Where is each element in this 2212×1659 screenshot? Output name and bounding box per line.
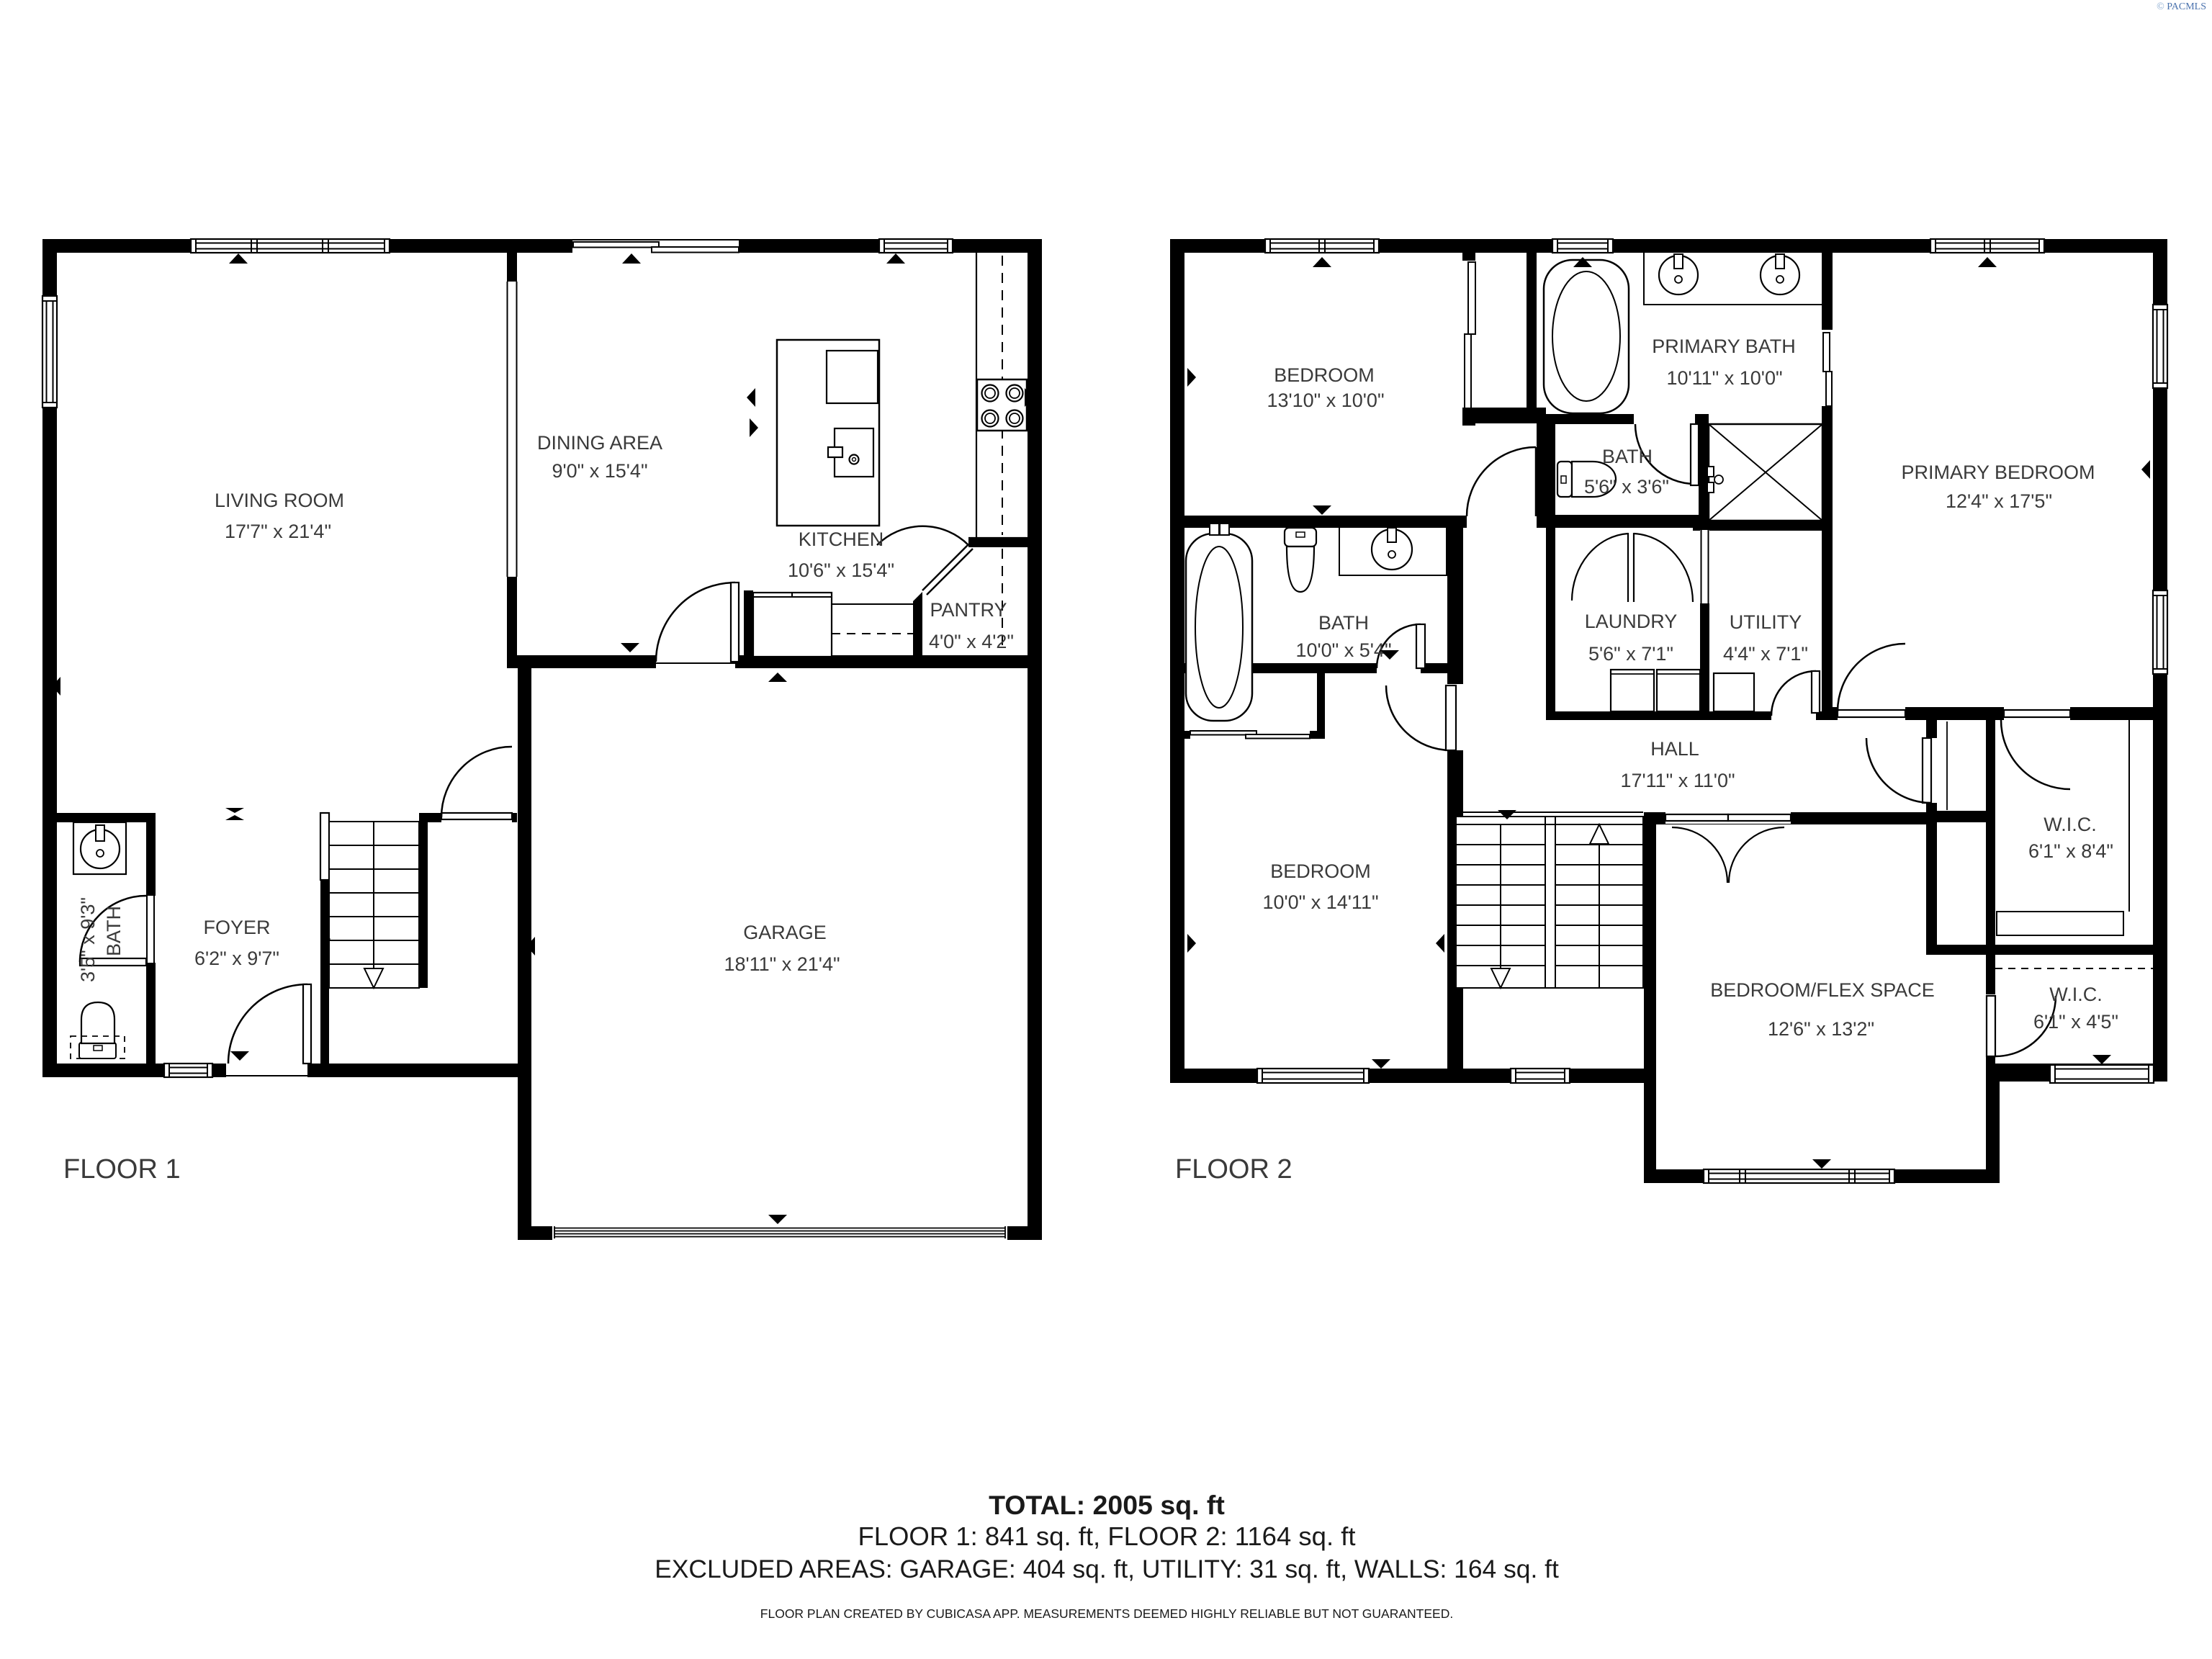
svg-text:FLOOR PLAN CREATED BY CUBICASA: FLOOR PLAN CREATED BY CUBICASA APP. MEAS… [760,1606,1453,1621]
svg-text:6'1" x 4'5": 6'1" x 4'5" [2033,1011,2118,1033]
svg-text:10'0" x 14'11": 10'0" x 14'11" [1262,891,1378,913]
svg-text:FLOOR 1: 841 sq. ft, FLOOR 2:: FLOOR 1: 841 sq. ft, FLOOR 2: 1164 sq. f… [858,1521,1355,1551]
svg-text:KITCHEN: KITCHEN [799,529,884,550]
svg-text:5'6" x 7'1": 5'6" x 7'1" [1588,643,1673,665]
svg-text:W.I.C.: W.I.C. [2049,984,2103,1005]
svg-text:10'11" x 10'0": 10'11" x 10'0" [1666,367,1782,389]
svg-text:13'10" x 10'0": 13'10" x 10'0" [1267,390,1384,411]
svg-text:BATH: BATH [1318,612,1369,634]
svg-text:FLOOR 2: FLOOR 2 [1175,1154,1292,1184]
svg-text:17'11" x 11'0": 17'11" x 11'0" [1620,770,1735,791]
svg-text:W.I.C.: W.I.C. [2044,814,2097,835]
svg-text:PANTRY: PANTRY [930,599,1007,621]
svg-text:FLOOR 1: FLOOR 1 [63,1154,181,1184]
svg-text:3'5" x 9'3": 3'5" x 9'3" [77,897,99,982]
svg-text:18'11" x 21'4": 18'11" x 21'4" [724,953,840,975]
svg-text:5'6" x 3'6": 5'6" x 3'6" [1584,476,1669,498]
svg-text:BEDROOM: BEDROOM [1274,364,1375,386]
svg-text:PRIMARY BATH: PRIMARY BATH [1652,336,1796,357]
svg-text:TOTAL: 2005 sq. ft: TOTAL: 2005 sq. ft [989,1490,1225,1520]
svg-text:BATH: BATH [103,906,125,956]
svg-text:UTILITY: UTILITY [1730,611,1802,633]
svg-text:DINING AREA: DINING AREA [537,432,662,454]
svg-text:4'0" x 4'2": 4'0" x 4'2" [929,631,1014,652]
svg-text:BATH: BATH [1602,446,1653,467]
svg-text:LAUNDRY: LAUNDRY [1585,611,1678,632]
svg-text:BEDROOM: BEDROOM [1270,860,1371,882]
svg-text:GARAGE: GARAGE [743,922,827,943]
svg-text:BEDROOM/FLEX SPACE: BEDROOM/FLEX SPACE [1710,979,1935,1001]
svg-text:4'4" x 7'1": 4'4" x 7'1" [1723,643,1808,665]
svg-text:12'4" x 17'5": 12'4" x 17'5" [1946,490,2052,512]
svg-text:FOYER: FOYER [203,917,270,938]
svg-text:6'2" x 9'7": 6'2" x 9'7" [194,948,279,969]
svg-text:© PACMLS: © PACMLS [2157,1,2206,12]
svg-text:HALL: HALL [1650,738,1699,760]
svg-text:EXCLUDED AREAS: GARAGE: 404 sq: EXCLUDED AREAS: GARAGE: 404 sq. ft, UTIL… [655,1555,1559,1583]
svg-text:LIVING ROOM: LIVING ROOM [215,490,344,511]
svg-text:17'7" x 21'4": 17'7" x 21'4" [225,521,331,542]
svg-text:10'6" x 15'4": 10'6" x 15'4" [788,559,894,581]
svg-text:9'0" x 15'4": 9'0" x 15'4" [552,460,647,482]
svg-text:10'0" x 5'4": 10'0" x 5'4" [1295,639,1391,661]
svg-text:PRIMARY BEDROOM: PRIMARY BEDROOM [1901,462,2095,483]
svg-text:12'6" x 13'2": 12'6" x 13'2" [1768,1018,1874,1040]
svg-text:6'1" x 8'4": 6'1" x 8'4" [2028,840,2113,862]
